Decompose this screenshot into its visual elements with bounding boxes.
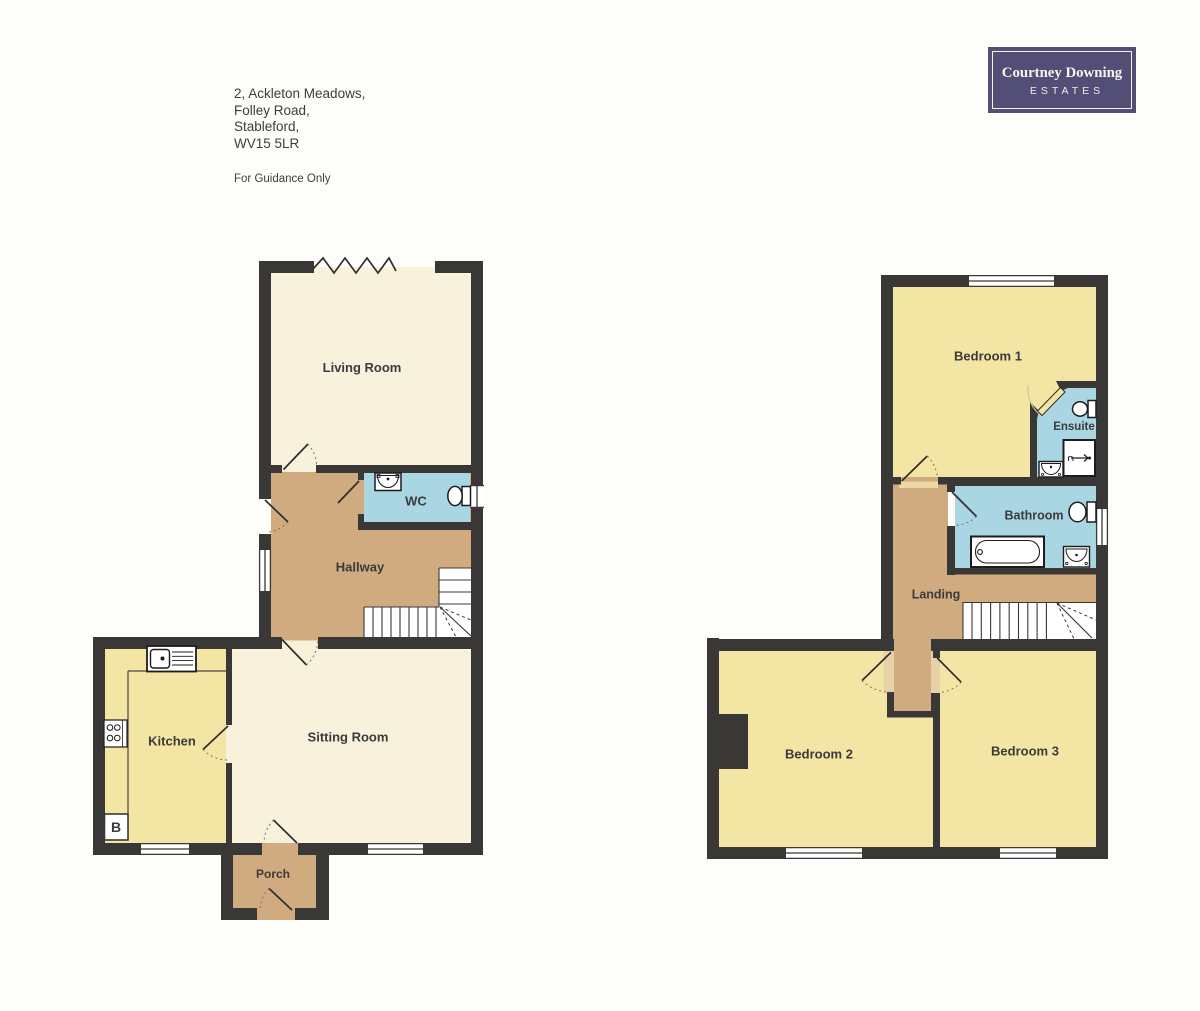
svg-text:B: B [111, 819, 121, 835]
svg-text:Sitting Room: Sitting Room [308, 730, 389, 745]
svg-text:Bathroom: Bathroom [1004, 509, 1063, 523]
svg-text:Kitchen: Kitchen [148, 734, 196, 749]
svg-text:Bedroom 2: Bedroom 2 [785, 747, 853, 762]
svg-text:WC: WC [405, 494, 427, 509]
svg-text:Ensuite: Ensuite [1053, 421, 1095, 433]
svg-text:Living Room: Living Room [323, 360, 402, 375]
svg-text:Bedroom 3: Bedroom 3 [991, 744, 1059, 759]
svg-text:Porch: Porch [256, 867, 290, 881]
svg-text:Bedroom 1: Bedroom 1 [954, 349, 1022, 364]
svg-text:Hallway: Hallway [336, 560, 385, 575]
svg-text:Landing: Landing [912, 588, 961, 602]
